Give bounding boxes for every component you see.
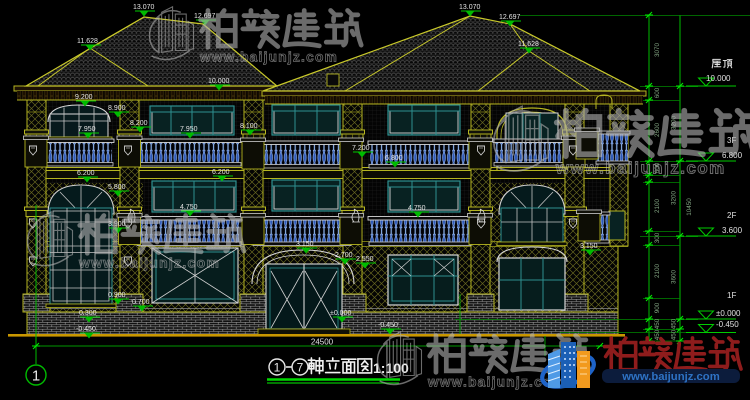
svg-text:2100: 2100 — [654, 264, 661, 279]
svg-text:2F: 2F — [727, 211, 736, 220]
svg-text:2100: 2100 — [654, 199, 661, 214]
svg-text:450: 450 — [654, 318, 661, 329]
svg-text:4.750: 4.750 — [180, 204, 198, 211]
svg-text:1: 1 — [274, 361, 281, 375]
svg-text:7: 7 — [297, 361, 304, 375]
svg-text:3.150: 3.150 — [580, 243, 598, 250]
svg-text:12.697: 12.697 — [499, 14, 521, 21]
svg-text:6.800: 6.800 — [385, 155, 403, 162]
svg-text:4.750: 4.750 — [408, 205, 426, 212]
svg-text:3.150: 3.150 — [296, 241, 314, 248]
svg-text:2.700: 2.700 — [335, 252, 353, 259]
svg-text:±0.000: ±0.000 — [716, 309, 741, 318]
svg-text:2.550: 2.550 — [356, 256, 374, 263]
svg-text:1F: 1F — [727, 291, 736, 300]
svg-text:3.600: 3.600 — [722, 226, 743, 235]
svg-text:0.900: 0.900 — [108, 292, 126, 299]
svg-text:10.000: 10.000 — [706, 74, 731, 83]
svg-text:10.000: 10.000 — [208, 78, 230, 85]
svg-text:13.070: 13.070 — [133, 4, 155, 11]
svg-text:13.070: 13.070 — [459, 4, 481, 11]
svg-text:www.baijunjz.com: www.baijunjz.com — [621, 371, 720, 383]
svg-text:11.628: 11.628 — [518, 41, 539, 48]
svg-text:8.200: 8.200 — [130, 120, 148, 127]
svg-text:3600: 3600 — [671, 270, 678, 285]
svg-text:450: 450 — [671, 318, 678, 329]
svg-text:450: 450 — [671, 329, 678, 340]
svg-text:10450: 10450 — [686, 198, 693, 216]
svg-text:7.200: 7.200 — [352, 145, 370, 152]
svg-text:-0.450: -0.450 — [716, 320, 739, 329]
svg-text:-0.450: -0.450 — [76, 326, 96, 333]
svg-text:7.950: 7.950 — [180, 126, 198, 133]
svg-text:300: 300 — [654, 232, 661, 243]
svg-text:6.200: 6.200 — [212, 169, 230, 176]
svg-text:6.200: 6.200 — [77, 170, 95, 177]
svg-text:24500: 24500 — [311, 338, 334, 347]
svg-text:600: 600 — [654, 87, 661, 98]
svg-text:900: 900 — [654, 302, 661, 313]
svg-text:0.700: 0.700 — [132, 299, 150, 306]
svg-text:11.628: 11.628 — [77, 38, 98, 45]
svg-text:0.300: 0.300 — [79, 310, 97, 317]
svg-text:8.900: 8.900 — [108, 105, 126, 112]
svg-text:8.100: 8.100 — [240, 123, 258, 130]
svg-text:3200: 3200 — [671, 191, 678, 206]
svg-text:±0.000: ±0.000 — [330, 310, 351, 317]
svg-text:5.800: 5.800 — [108, 184, 126, 191]
svg-text:7.950: 7.950 — [78, 126, 96, 133]
svg-text:3070: 3070 — [654, 43, 661, 58]
svg-text:2600: 2600 — [654, 123, 661, 138]
svg-text:1: 1 — [32, 368, 40, 385]
svg-text:9.200: 9.200 — [75, 94, 93, 101]
svg-text:-0.450: -0.450 — [378, 322, 398, 329]
